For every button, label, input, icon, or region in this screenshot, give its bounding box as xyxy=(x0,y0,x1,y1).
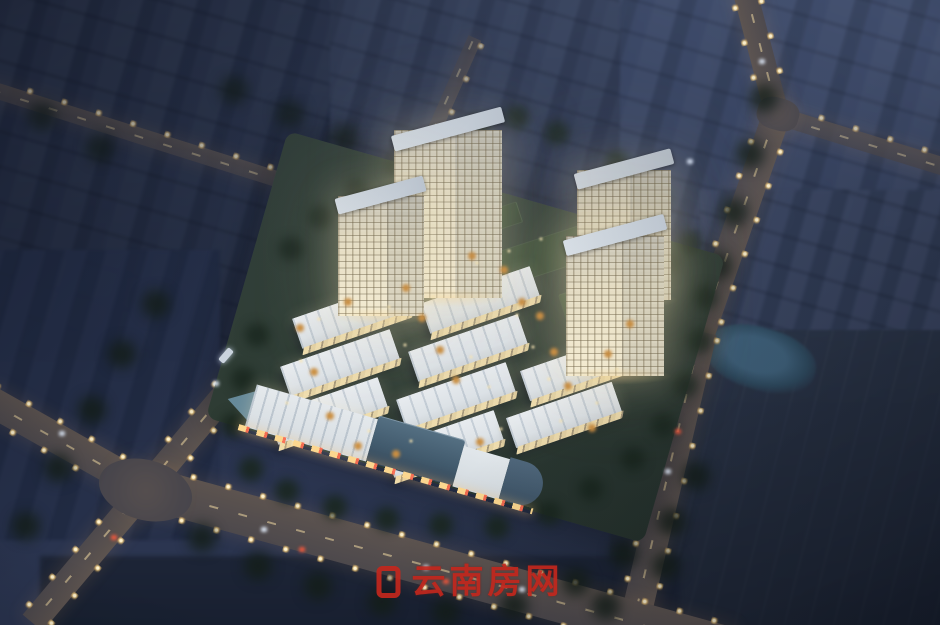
watermark: 云南房网 xyxy=(377,565,564,599)
tower-west xyxy=(338,196,424,316)
watermark-text: 云南房网 xyxy=(412,565,564,599)
tower-east xyxy=(566,236,664,376)
night-aerial-rendering: 云南房网 xyxy=(0,0,940,625)
car-taillights xyxy=(0,0,4,3)
watermark-logo-icon xyxy=(377,566,401,598)
